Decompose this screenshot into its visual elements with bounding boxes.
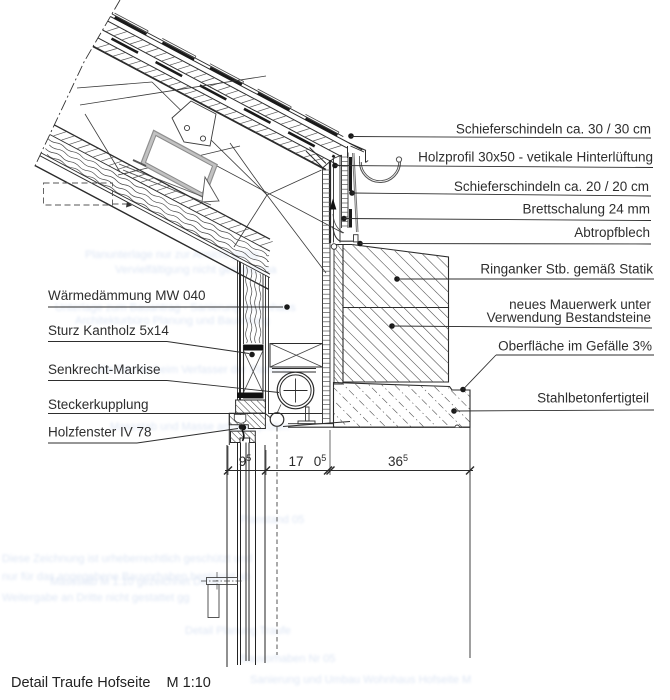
svg-text:17: 17	[288, 454, 303, 469]
svg-text:Abtropfblech: Abtropfblech	[574, 225, 650, 240]
svg-text:Ringanker Stb. gemäß Statik: Ringanker Stb. gemäß Statik	[480, 262, 653, 277]
svg-text:Sturz Kantholz 5x14: Sturz Kantholz 5x14	[48, 323, 169, 338]
svg-text:Planstand 05: Planstand 05	[240, 514, 304, 526]
svg-text:Bauvorhaben Nr 05: Bauvorhaben Nr 05	[240, 653, 335, 665]
svg-text:Diese Zeichnung ist urheberrec: Diese Zeichnung ist urheberrechtlich ges…	[2, 553, 252, 565]
svg-text:Holzfenster IV 78: Holzfenster IV 78	[48, 425, 152, 440]
svg-text:Sanierung und Umbau Wohnhaus H: Sanierung und Umbau Wohnhaus Hofseite M	[250, 674, 471, 686]
svg-text:Schieferschindeln ca. 20 / 20: Schieferschindeln ca. 20 / 20 cm	[454, 179, 649, 194]
svg-text:Steckerkupplung: Steckerkupplung	[48, 397, 149, 412]
svg-text:Massstab M 1:10 gezeichnet De: Massstab M 1:10 gezeichnet Detail	[50, 576, 221, 588]
svg-text:Unterlage zum Bauantrag - Sani: Unterlage zum Bauantrag - Sanierung Wohn…	[55, 302, 296, 314]
svg-text:Wärmedämmung MW 040: Wärmedämmung MW 040	[48, 288, 206, 303]
svg-text:Senkrecht-Markise: Senkrecht-Markise	[48, 362, 161, 377]
svg-text:Brettschalung 24 mm: Brettschalung 24 mm	[522, 202, 650, 217]
svg-text:Planunterlage nur zur Ansicht: Planunterlage nur zur Ansicht gültig	[85, 249, 258, 261]
svg-text:Holzprofil 30x50 - vetikale Hi: Holzprofil 30x50 - vetikale Hinterlüftun…	[418, 150, 653, 165]
svg-text:Oberfläche im Gefälle 3%: Oberfläche im Gefälle 3%	[498, 339, 652, 354]
svg-text:Weitergabe an Dritte nicht ges: Weitergabe an Dritte nicht gestattet gg	[2, 592, 190, 604]
svg-text:Stahlbetonfertigteil: Stahlbetonfertigteil	[537, 391, 649, 406]
svg-text:Schieferschindeln ca. 30 / 30: Schieferschindeln ca. 30 / 30 cm	[456, 122, 651, 137]
svg-text:Detail Traufe Hofseite M 1:: Detail Traufe Hofseite M 1:10	[11, 675, 211, 691]
svg-text:Vervielfältigung nicht gestatt: Vervielfältigung nicht gestattet na	[115, 264, 277, 276]
svg-text:Verwendung Bestandsteine: Verwendung Bestandsteine	[487, 310, 651, 325]
